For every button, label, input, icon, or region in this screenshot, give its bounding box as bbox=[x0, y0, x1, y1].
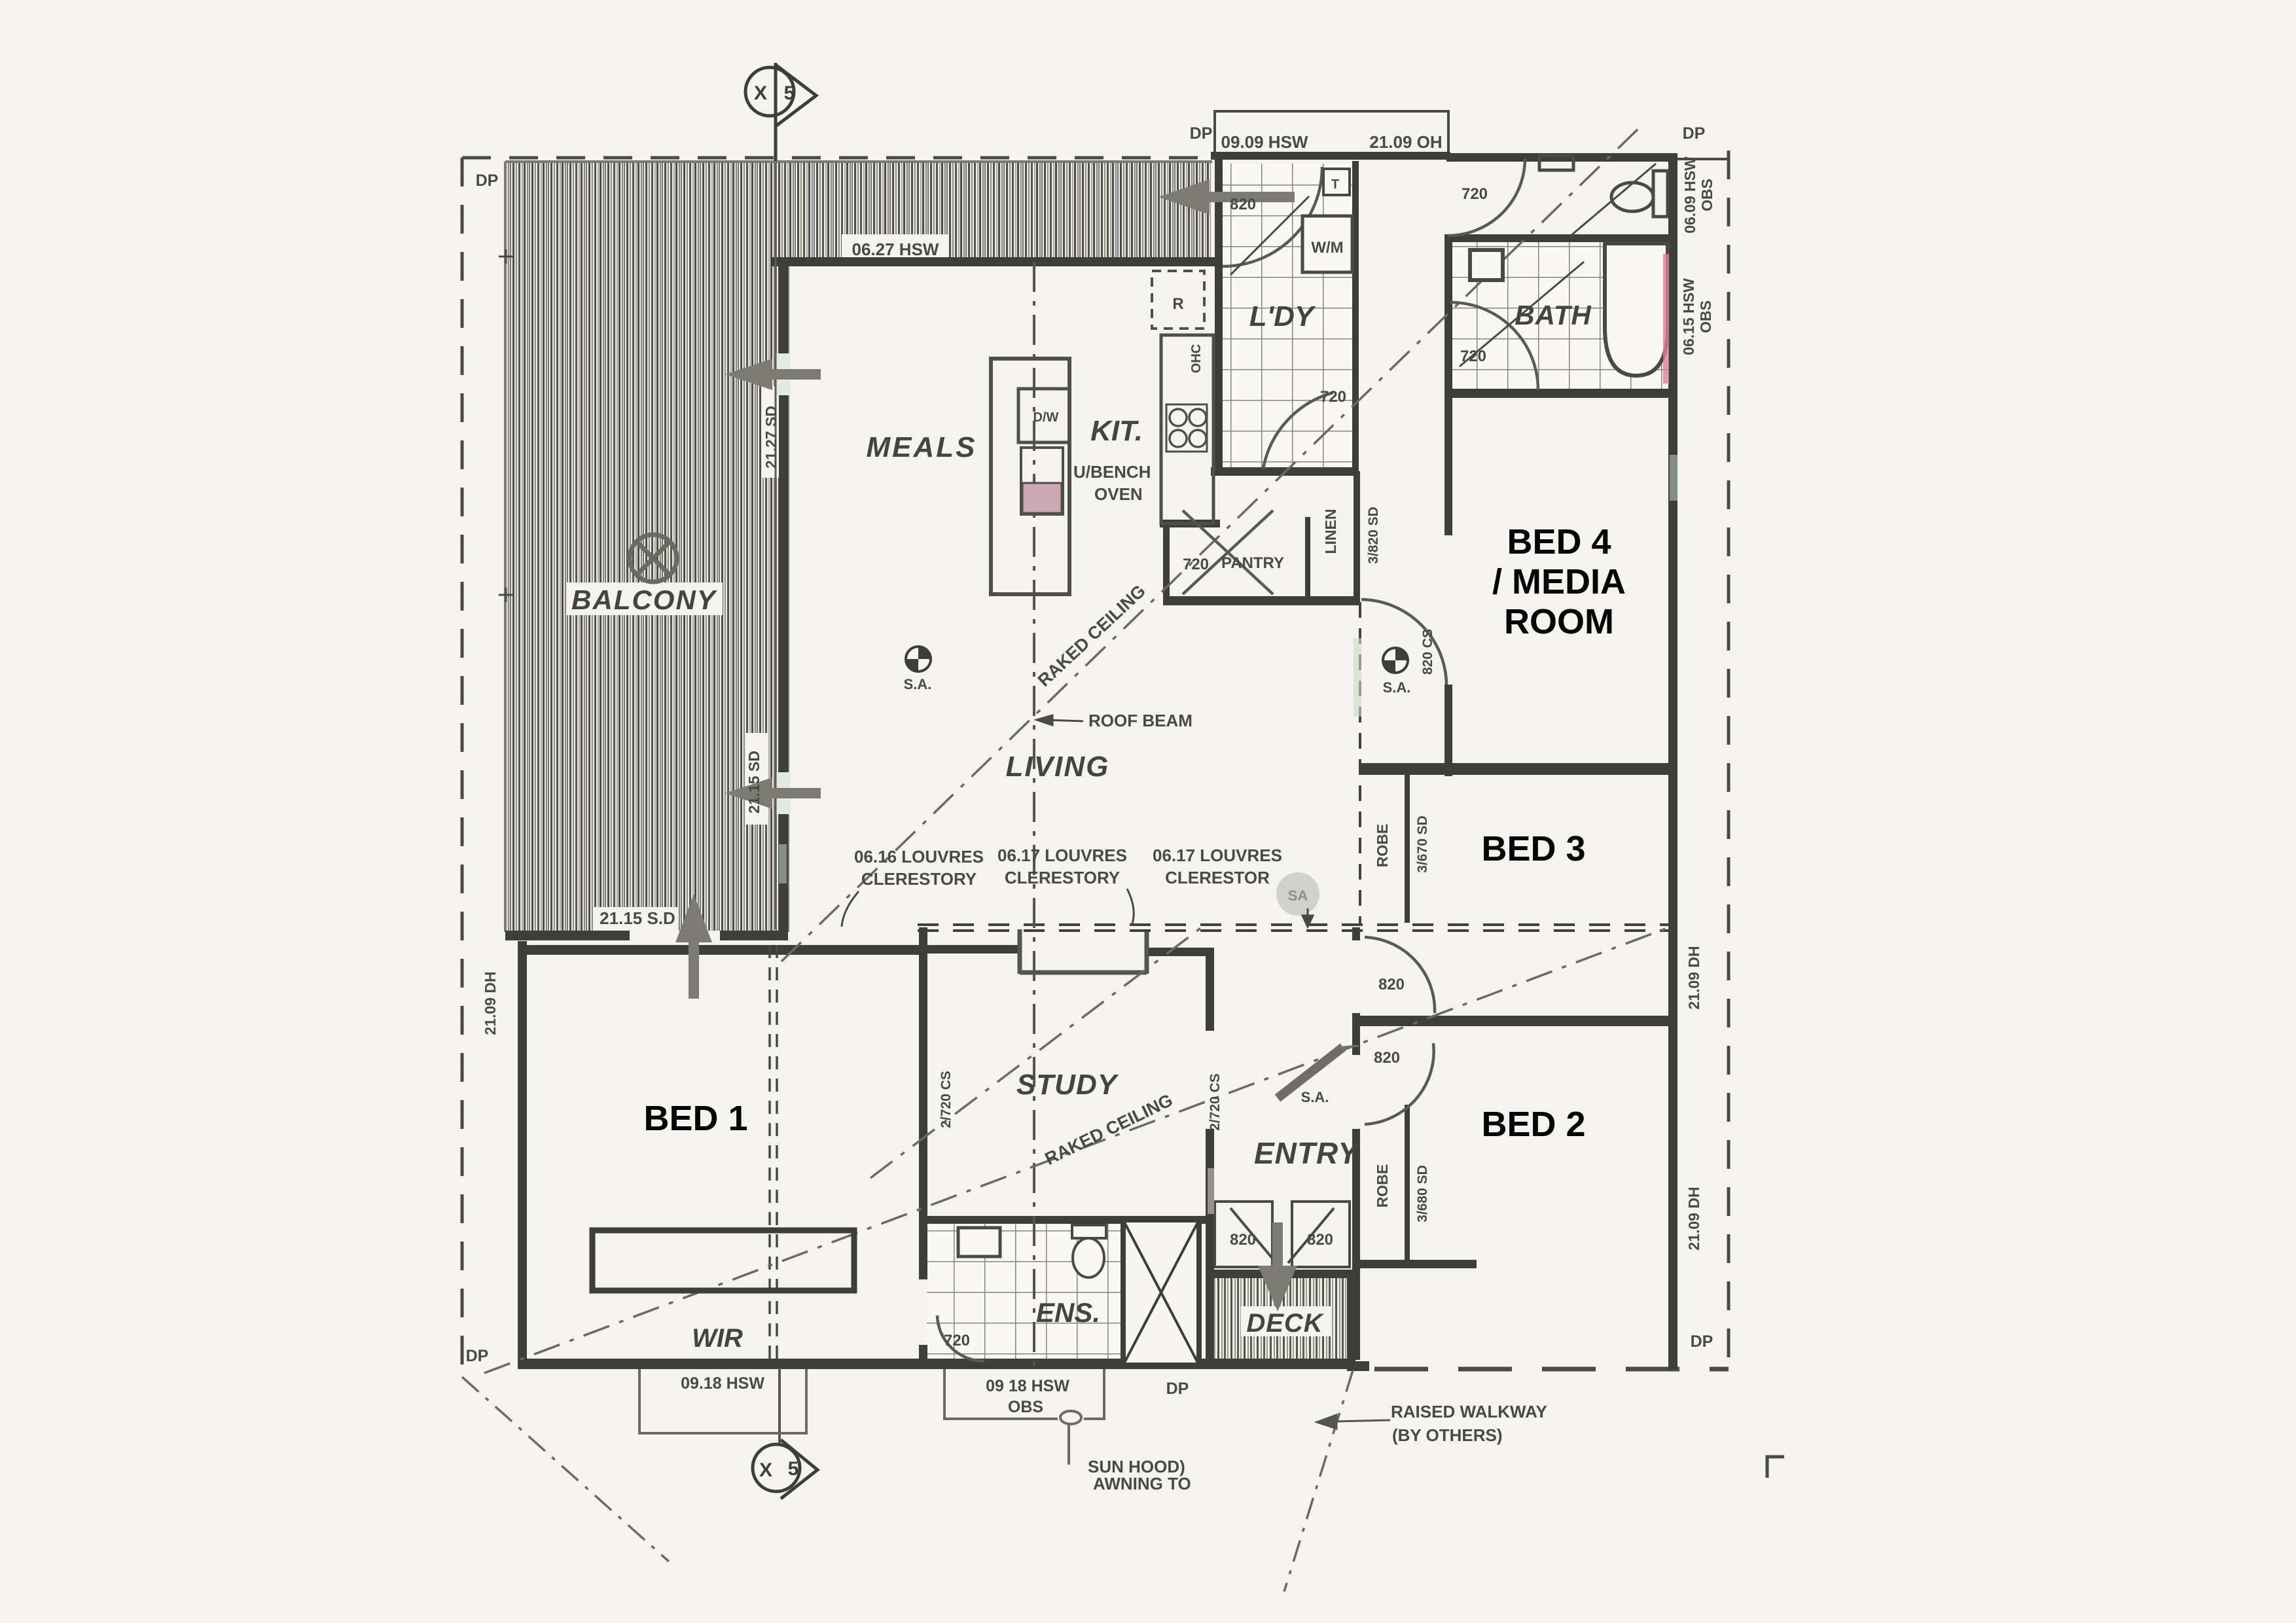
svg-text:DP: DP bbox=[466, 1347, 489, 1365]
svg-text:820: 820 bbox=[1378, 976, 1405, 993]
svg-text:R: R bbox=[1172, 295, 1183, 313]
svg-text:ENS.: ENS. bbox=[1036, 1297, 1100, 1328]
svg-text:DP: DP bbox=[476, 171, 499, 190]
svg-text:21.27 SD: 21.27 SD bbox=[762, 406, 780, 469]
svg-text:LINEN: LINEN bbox=[1322, 509, 1339, 554]
svg-text:OHC: OHC bbox=[1189, 344, 1204, 373]
svg-text:ENTRY: ENTRY bbox=[1254, 1136, 1361, 1170]
svg-text:D/W: D/W bbox=[1033, 410, 1059, 425]
svg-text:09.09 HSW: 09.09 HSW bbox=[1221, 132, 1308, 152]
svg-text:5: 5 bbox=[788, 1458, 799, 1480]
svg-text:BED 1: BED 1 bbox=[643, 1099, 747, 1138]
svg-text:720: 720 bbox=[1462, 185, 1488, 203]
svg-text:ROOF BEAM: ROOF BEAM bbox=[1088, 711, 1193, 730]
svg-text:(BY OTHERS): (BY OTHERS) bbox=[1392, 1425, 1503, 1445]
svg-text:U/BENCH: U/BENCH bbox=[1073, 462, 1151, 482]
svg-text:LIVING: LIVING bbox=[1006, 751, 1110, 783]
svg-text:06.17 LOUVRES: 06.17 LOUVRES bbox=[997, 846, 1127, 865]
svg-text:ROOM: ROOM bbox=[1504, 602, 1614, 641]
svg-text:06.15 HSW: 06.15 HSW bbox=[1680, 278, 1697, 355]
svg-text:T: T bbox=[1331, 177, 1339, 192]
svg-text:OBS: OBS bbox=[1697, 300, 1714, 333]
svg-text:2/720 CS: 2/720 CS bbox=[939, 1071, 954, 1128]
svg-text:PANTRY: PANTRY bbox=[1221, 554, 1284, 572]
svg-text:BATH: BATH bbox=[1515, 300, 1592, 330]
svg-text:DP: DP bbox=[1166, 1380, 1189, 1398]
svg-text:21.09 DH: 21.09 DH bbox=[1685, 1186, 1702, 1250]
svg-text:BED 2: BED 2 bbox=[1481, 1105, 1585, 1144]
svg-text:06.09 HSW: 06.09 HSW bbox=[1681, 156, 1698, 234]
svg-text:WIR: WIR bbox=[692, 1324, 743, 1353]
svg-text:09.18 HSW: 09.18 HSW bbox=[681, 1374, 764, 1393]
svg-text:820: 820 bbox=[1230, 1231, 1256, 1249]
svg-text:820: 820 bbox=[1230, 196, 1256, 213]
svg-text:21.15 S.D: 21.15 S.D bbox=[600, 908, 675, 928]
svg-text:DP: DP bbox=[1683, 124, 1706, 143]
svg-text:21.09 DH: 21.09 DH bbox=[482, 971, 499, 1035]
svg-text:OVEN: OVEN bbox=[1094, 484, 1143, 504]
svg-text:06.27 HSW: 06.27 HSW bbox=[852, 240, 939, 259]
svg-text:X: X bbox=[754, 82, 767, 104]
svg-text:720: 720 bbox=[1320, 388, 1346, 406]
svg-text:CLERESTORY: CLERESTORY bbox=[1005, 868, 1120, 887]
svg-text:BED 3: BED 3 bbox=[1481, 829, 1585, 868]
svg-text:KIT.: KIT. bbox=[1090, 415, 1143, 447]
svg-text:L'DY: L'DY bbox=[1249, 300, 1316, 332]
svg-text:3/680 SD: 3/680 SD bbox=[1415, 1165, 1430, 1222]
svg-text:3/820 SD: 3/820 SD bbox=[1366, 507, 1381, 564]
svg-text:720: 720 bbox=[944, 1332, 970, 1349]
svg-text:820: 820 bbox=[1374, 1049, 1400, 1067]
svg-text:06.16 LOUVRES: 06.16 LOUVRES bbox=[854, 847, 984, 866]
svg-text:2/720 CS: 2/720 CS bbox=[1208, 1073, 1223, 1131]
svg-text:720: 720 bbox=[1183, 556, 1209, 573]
svg-text:09 18 HSW: 09 18 HSW bbox=[986, 1377, 1069, 1395]
svg-text:BED 4: BED 4 bbox=[1507, 522, 1611, 562]
svg-text:820 CS: 820 CS bbox=[1420, 629, 1435, 675]
svg-text:BALCONY: BALCONY bbox=[571, 584, 718, 615]
svg-text:3/670 SD: 3/670 SD bbox=[1415, 815, 1430, 873]
svg-text:DECK: DECK bbox=[1246, 1309, 1324, 1338]
svg-text:720: 720 bbox=[1460, 348, 1486, 365]
svg-text:STUDY: STUDY bbox=[1016, 1069, 1119, 1101]
svg-text:S.A.: S.A. bbox=[1383, 679, 1411, 696]
svg-text:DP: DP bbox=[1190, 124, 1213, 143]
svg-text:RAISED WALKWAY: RAISED WALKWAY bbox=[1391, 1402, 1547, 1421]
svg-text:OBS: OBS bbox=[1008, 1398, 1043, 1416]
svg-text:X: X bbox=[759, 1459, 772, 1481]
svg-text:OBS: OBS bbox=[1698, 179, 1715, 211]
svg-text:S.A.: S.A. bbox=[1301, 1089, 1329, 1105]
svg-text:820: 820 bbox=[1307, 1231, 1333, 1249]
svg-text:21.09 OH: 21.09 OH bbox=[1369, 132, 1442, 152]
svg-text:CLERESTORY: CLERESTORY bbox=[861, 869, 977, 889]
svg-text:SA: SA bbox=[1288, 887, 1308, 904]
svg-text:21.09 DH: 21.09 DH bbox=[1685, 946, 1702, 1009]
svg-text:5: 5 bbox=[784, 82, 795, 104]
svg-text:ROBE: ROBE bbox=[1374, 1164, 1391, 1207]
svg-text:W/M: W/M bbox=[1311, 239, 1343, 257]
svg-text:CLERESTOR: CLERESTOR bbox=[1165, 868, 1270, 887]
svg-text:/ MEDIA: / MEDIA bbox=[1492, 562, 1626, 601]
svg-text:DP: DP bbox=[1691, 1332, 1713, 1351]
svg-text:MEALS: MEALS bbox=[867, 431, 977, 463]
svg-text:S.A.: S.A. bbox=[904, 676, 932, 692]
svg-text:AWNING TO: AWNING TO bbox=[1093, 1474, 1191, 1493]
svg-text:06.17 LOUVRES: 06.17 LOUVRES bbox=[1153, 846, 1282, 865]
svg-text:21.15 SD: 21.15 SD bbox=[745, 751, 762, 813]
svg-text:ROBE: ROBE bbox=[1374, 824, 1391, 867]
